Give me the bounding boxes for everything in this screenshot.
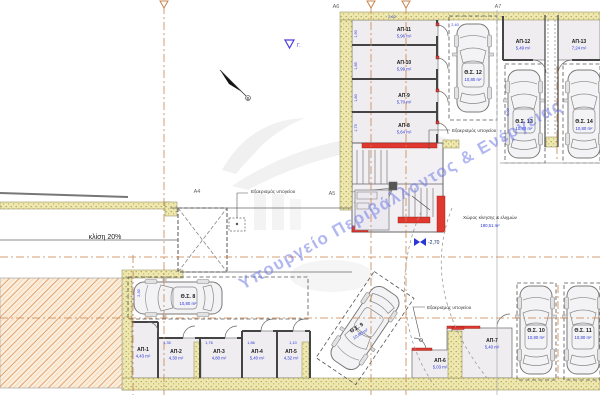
storage-label: ΑΠ-2 [170,349,182,355]
storage-label: ΑΠ-4 [251,349,263,355]
parking-label: Θ.Σ. 11 [574,328,591,334]
vent-label-right: Εξαερισμός υπογείου [427,304,472,311]
dimension: 2,62 [388,15,395,19]
room-ap12 [503,16,545,60]
storage-label: ΑΠ-5 [285,349,297,355]
parking-area: 10,80 m² [576,126,594,131]
storage-label: ΑΠ-3 [213,349,225,355]
basement-level-icon [414,238,426,246]
storage-area: 4,43 m² [136,354,151,359]
level-marker-icon [285,40,294,48]
basement-level-label: -2,70 [428,240,440,246]
dimension: 1,10 [289,341,296,345]
dimension: 1,80 [354,94,358,101]
storage-area: 5,49 m² [516,46,531,51]
dimension: 1,76 [205,341,212,345]
storage-area: 5,40 m² [250,356,265,361]
vent-leader-right [413,307,425,342]
dimension: 1,90 [354,30,358,37]
storage-area: 4,32 m² [284,356,299,361]
storage-area: 4,30 m² [169,356,184,361]
dimension: 1,85 [354,62,358,69]
storage-area: 4,80 m² [212,356,227,361]
dimension: 1,86 [247,341,254,345]
storage-block-top [352,20,438,143]
maneuver-title: Χώρος κίνησης & ελιγμών [463,214,518,220]
storage-label: ΑΠ-1 [137,347,149,353]
storage-area: 5,70 m² [397,100,412,105]
storage-label: ΑΠ-10 [397,60,412,66]
parking-area: 10,80 m² [528,335,546,340]
storage-area: 5,40 m² [485,345,500,350]
dimension: 1,75 [354,124,358,131]
ramp-slope-label: κλίση 20% [89,233,122,241]
platform-x [178,208,227,272]
shaft [545,15,558,147]
car-icon [453,24,494,112]
retaining-wall-edge [0,193,128,197]
parking-area: 10,80 m² [575,335,593,340]
storage-area: 5,03 m² [433,365,448,370]
parking-label: Θ.Σ. 12 [464,70,482,76]
parking-label: Θ.Σ. 8 [181,294,196,300]
dimension: 2,40 [451,23,458,27]
storage-label: ΑΠ-12 [516,39,531,45]
dimension: 2,30 [137,289,141,296]
floor-plan-canvas: A4 A5 A6 A7 Β Γ. -2,70 ΑΠ-11 5,96 m² ΑΠ-… [0,0,600,400]
storage-area: 5,64 m² [397,130,412,135]
grid-label-a7: A7 [495,4,502,10]
storage-area: 7,24 m² [572,46,587,51]
storage-label: ΑΠ-13 [572,39,587,45]
floor-plan: A4 A5 A6 A7 Β Γ. -2,70 ΑΠ-11 5,96 m² ΑΠ-… [0,0,600,400]
section-marker-icon [160,1,410,8]
vent-box [229,193,248,231]
storage-label: ΑΠ-7 [486,338,498,344]
parking-area: 10,80 m² [180,301,198,306]
top-level-label: Γ. [297,43,301,49]
north-label: Β [246,96,249,101]
car-icon [134,278,222,319]
grid-label-a6: A6 [333,4,340,10]
grid-label-a4: A4 [194,189,201,195]
dimension: 1,35 [163,341,170,345]
vent-label-left: Εξαερισμός υπογείου [251,188,296,195]
storage-area: 5,96 m² [397,34,412,39]
parking-label: Θ.Σ. 14 [575,119,593,125]
room-ap13 [558,16,600,60]
storage-label: ΑΠ-11 [397,27,411,33]
storage-area: 5,99 m² [397,67,412,72]
storage-label: ΑΠ-6 [434,358,446,364]
maneuver-area: 180,51 m² [480,223,500,228]
storage-label: ΑΠ-8 [398,123,410,129]
earth-hatch [0,278,122,388]
car-icon [564,70,600,158]
parking-label: Θ.Σ. 10 [527,328,545,334]
parking-area: 10,80 m² [465,77,483,82]
grid-label-a5: A5 [329,191,336,197]
storage-label: ΑΠ-9 [398,93,410,99]
dimension: 5,00 [506,108,510,115]
